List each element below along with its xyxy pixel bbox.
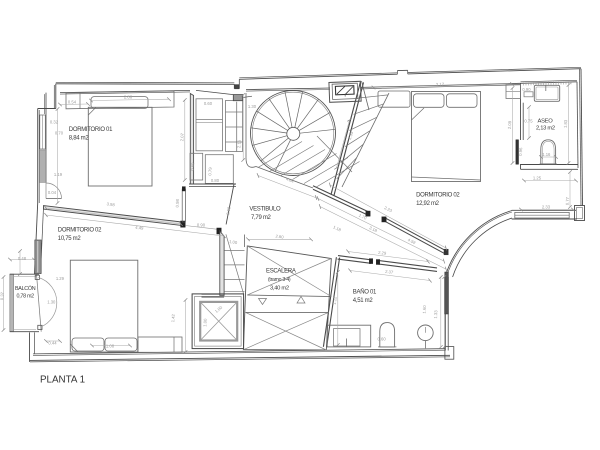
svg-text:0.98: 0.98 — [225, 206, 231, 216]
svg-text:PLANTA 1: PLANTA 1 — [40, 375, 85, 386]
svg-text:0.79: 0.79 — [207, 167, 212, 176]
svg-text:0.44: 0.44 — [48, 340, 57, 345]
svg-text:1.16: 1.16 — [542, 152, 551, 157]
svg-text:1.00: 1.00 — [202, 318, 207, 327]
svg-text:4,51 m2: 4,51 m2 — [353, 298, 374, 304]
svg-text:1.83: 1.83 — [563, 119, 568, 128]
svg-text:0.60: 0.60 — [190, 162, 195, 171]
svg-text:2.16: 2.16 — [236, 139, 241, 148]
svg-text:1.42: 1.42 — [170, 313, 176, 322]
svg-text:BAÑO 01: BAÑO 01 — [353, 289, 377, 296]
svg-text:0.70: 0.70 — [55, 131, 64, 136]
svg-text:1.12: 1.12 — [332, 296, 338, 305]
svg-text:0.37: 0.37 — [0, 291, 5, 300]
svg-text:3.17: 3.17 — [436, 82, 445, 87]
svg-text:0.48: 0.48 — [18, 256, 27, 261]
svg-text:0.90: 0.90 — [197, 223, 206, 228]
svg-text:2,13 m2: 2,13 m2 — [536, 126, 555, 132]
svg-text:10,75 m2: 10,75 m2 — [58, 236, 82, 242]
svg-text:0.80: 0.80 — [211, 178, 220, 183]
svg-text:2.23: 2.23 — [383, 205, 393, 213]
svg-text:2.33: 2.33 — [542, 204, 551, 209]
svg-text:DORMITORIO 02: DORMITORIO 02 — [58, 228, 102, 234]
svg-text:1.33: 1.33 — [433, 310, 438, 319]
svg-text:1.19: 1.19 — [54, 172, 63, 177]
svg-text:0.77: 0.77 — [565, 196, 570, 205]
svg-text:0.60: 0.60 — [378, 337, 387, 342]
svg-text:0.60: 0.60 — [204, 101, 213, 106]
svg-text:DORMITORIO 02: DORMITORIO 02 — [416, 193, 460, 199]
svg-text:2.60: 2.60 — [275, 234, 284, 240]
svg-text:0.04: 0.04 — [48, 190, 57, 195]
svg-text:0,78 m2: 0,78 m2 — [17, 294, 35, 300]
svg-text:3.18: 3.18 — [368, 225, 378, 233]
svg-text:1.08: 1.08 — [106, 343, 115, 348]
svg-text:7,79 m2: 7,79 m2 — [251, 215, 272, 221]
svg-text:4.64: 4.64 — [285, 176, 295, 184]
svg-text:VESTIBULO: VESTIBULO — [249, 207, 281, 213]
svg-text:(tramo 3-4): (tramo 3-4) — [268, 277, 291, 283]
svg-text:2.29: 2.29 — [378, 250, 387, 256]
svg-text:0.54: 0.54 — [68, 99, 77, 104]
svg-text:0.98: 0.98 — [175, 198, 180, 207]
svg-text:2.09: 2.09 — [507, 120, 512, 129]
svg-text:2.35: 2.35 — [347, 130, 354, 140]
svg-text:0.96: 0.96 — [518, 147, 523, 156]
svg-text:8,84 m2: 8,84 m2 — [69, 135, 90, 141]
svg-text:ESCALERA: ESCALERA — [266, 269, 296, 275]
svg-text:DORMITORIO 01: DORMITORIO 01 — [69, 127, 113, 133]
svg-text:2.07: 2.07 — [179, 132, 184, 141]
svg-text:1.60: 1.60 — [422, 305, 427, 314]
svg-text:0.32: 0.32 — [50, 120, 59, 125]
svg-text:1.29: 1.29 — [56, 276, 65, 281]
svg-text:ASEO: ASEO — [538, 119, 554, 125]
svg-text:1.30: 1.30 — [47, 299, 56, 304]
svg-text:3,40 m2: 3,40 m2 — [270, 286, 289, 292]
svg-text:1.00: 1.00 — [229, 239, 238, 245]
svg-text:2.86: 2.86 — [124, 94, 133, 99]
svg-text:0.90: 0.90 — [522, 87, 531, 92]
svg-text:4.49: 4.49 — [135, 225, 144, 231]
svg-text:BALCÓN: BALCÓN — [15, 285, 36, 292]
svg-text:2.37: 2.37 — [385, 269, 394, 275]
svg-text:0.75: 0.75 — [524, 119, 533, 124]
svg-text:3.98: 3.98 — [106, 201, 115, 207]
svg-text:1.30: 1.30 — [248, 104, 257, 109]
svg-text:1.18: 1.18 — [332, 224, 342, 232]
svg-text:1.00: 1.00 — [214, 304, 224, 314]
svg-text:12,92 m2: 12,92 m2 — [416, 201, 440, 207]
svg-text:1.25: 1.25 — [533, 175, 542, 180]
